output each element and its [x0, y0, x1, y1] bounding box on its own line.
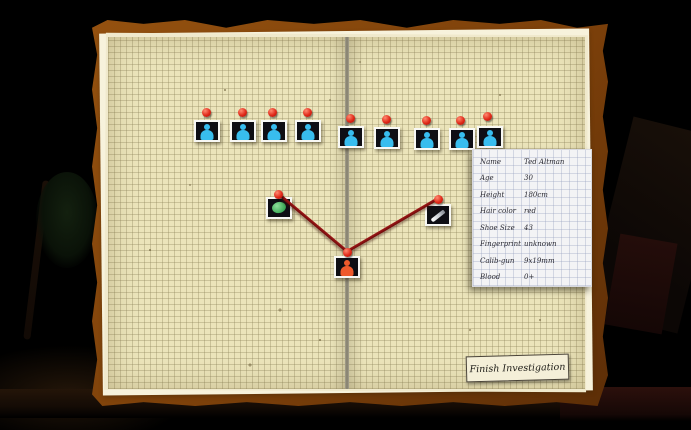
- info-value: 180cm: [524, 191, 548, 199]
- info-value: unknown: [524, 240, 556, 248]
- photo-frame: [376, 129, 398, 147]
- suspect-person-icon: [420, 132, 434, 147]
- photo-frame: [340, 128, 362, 146]
- photo-frame: [263, 122, 285, 140]
- notebook-binding: [345, 37, 349, 389]
- photo-frame: [427, 206, 449, 224]
- pin-icon: [238, 108, 247, 117]
- pin-icon: [303, 108, 312, 117]
- finish-investigation-label: Finish Investigation: [469, 361, 565, 375]
- suspect-photo[interactable]: [338, 126, 364, 148]
- photo-frame: [336, 258, 358, 276]
- photo-frame: [232, 122, 254, 140]
- suspect-photo[interactable]: [295, 120, 321, 142]
- plant-foliage: [36, 172, 98, 268]
- info-row: Height 180cm: [480, 188, 588, 201]
- info-label: Blood: [480, 273, 524, 281]
- pin-icon: [268, 108, 277, 117]
- victim-person-icon: [340, 260, 354, 275]
- pin-icon: [434, 195, 443, 204]
- suspect-person-icon: [236, 124, 250, 139]
- suspect-person-icon: [301, 124, 315, 139]
- pin-icon: [202, 108, 211, 117]
- photo-frame: [196, 122, 218, 140]
- info-label: Shoe Size: [480, 224, 524, 232]
- info-label: Hair color: [480, 207, 524, 215]
- suspect-person-icon: [344, 130, 358, 145]
- info-row: Fingerprint unknown: [480, 237, 588, 250]
- photo-frame: [416, 130, 438, 148]
- suspect-photo[interactable]: [374, 127, 400, 149]
- suspect-photo[interactable]: [477, 126, 503, 148]
- photo-frame: [297, 122, 319, 140]
- info-row: Shoe Size 43: [480, 221, 588, 234]
- pin-icon: [483, 112, 492, 121]
- suspect-person-icon: [267, 124, 281, 139]
- pin-icon: [274, 190, 283, 199]
- suspect-person-icon: [380, 131, 394, 146]
- info-label: Name: [480, 158, 524, 166]
- photo-frame: [479, 128, 501, 146]
- pin-icon: [422, 116, 431, 125]
- game-screen: Name Ted Altman Age 30 Height 180cm Hair…: [0, 0, 691, 430]
- pin-icon: [382, 115, 391, 124]
- info-value: Ted Altman: [524, 158, 564, 166]
- info-value: 43: [524, 224, 533, 232]
- suspect-person-icon: [455, 132, 469, 147]
- info-label: Fingerprint: [480, 240, 524, 248]
- victim-photo[interactable]: [334, 256, 360, 278]
- suspect-info-card: Name Ted Altman Age 30 Height 180cm Hair…: [472, 149, 592, 287]
- info-row: Name Ted Altman: [480, 155, 588, 168]
- green-object-icon: [271, 201, 287, 215]
- suspect-photo[interactable]: [261, 120, 287, 142]
- suspect-photo[interactable]: [194, 120, 220, 142]
- info-label: Age: [480, 174, 524, 182]
- pin-icon: [343, 248, 352, 257]
- suspect-photo[interactable]: [414, 128, 440, 150]
- finish-investigation-button[interactable]: Finish Investigation: [466, 354, 570, 383]
- suspect-photo[interactable]: [230, 120, 256, 142]
- suspect-photo[interactable]: [449, 128, 475, 150]
- info-value: 9x19mm: [524, 257, 555, 265]
- pin-icon: [456, 116, 465, 125]
- info-value: 30: [524, 174, 533, 182]
- info-row: Blood 0+: [480, 270, 588, 283]
- pin-icon: [346, 114, 355, 123]
- suspect-person-icon: [200, 124, 214, 139]
- info-value: 0+: [524, 273, 534, 281]
- photo-frame: [451, 130, 473, 148]
- info-row: Age 30: [480, 171, 588, 184]
- info-value: red: [524, 207, 536, 215]
- knife-photo[interactable]: [425, 204, 451, 226]
- info-label: Calib-gun: [480, 257, 524, 265]
- info-label: Height: [480, 191, 524, 199]
- info-row: Calib-gun 9x19mm: [480, 254, 588, 267]
- info-row: Hair color red: [480, 204, 588, 217]
- knife-icon: [430, 209, 445, 222]
- suspect-person-icon: [483, 130, 497, 145]
